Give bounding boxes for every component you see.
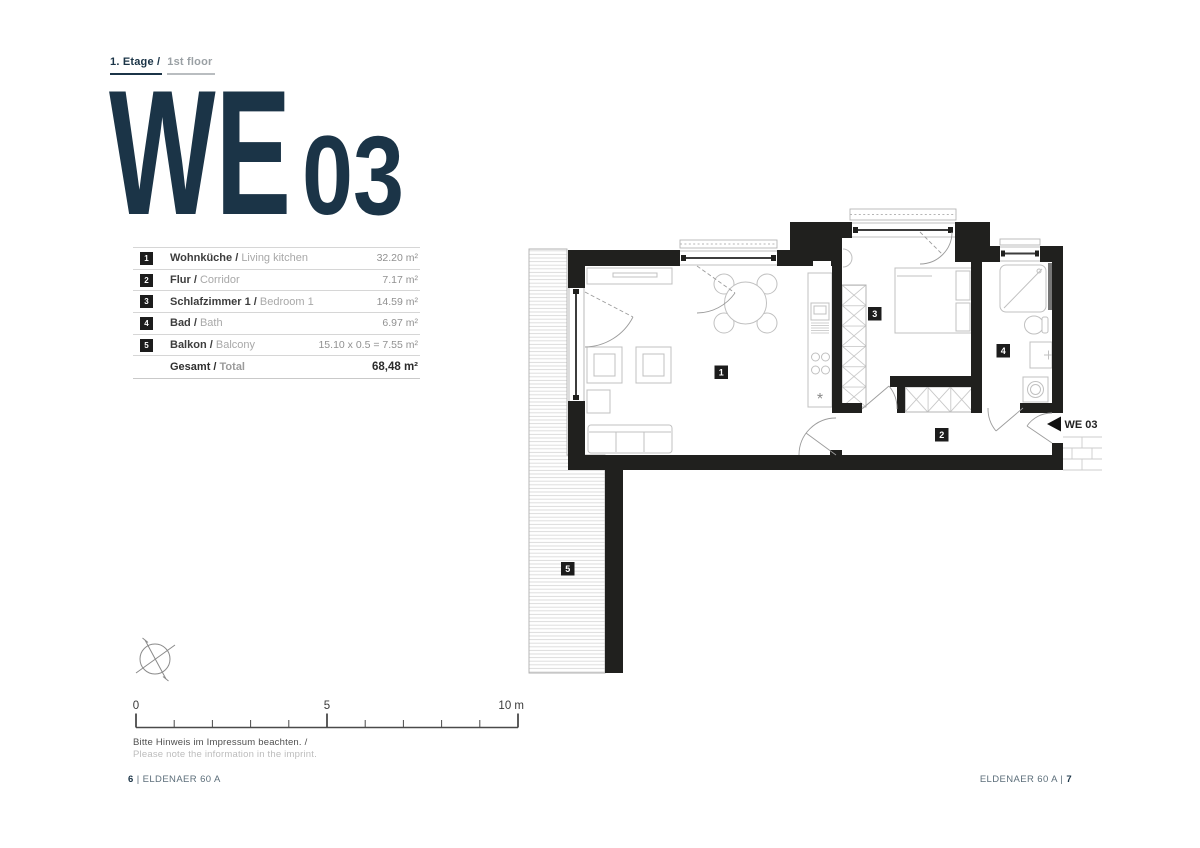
washing-machine bbox=[1023, 377, 1048, 402]
dining-table bbox=[725, 282, 767, 324]
armchair bbox=[587, 347, 622, 383]
living-top-window bbox=[680, 250, 777, 266]
svg-text:3: 3 bbox=[872, 309, 877, 319]
table-row: 5 Balkon / Balcony 15.10 x 0.5 = 7.55 m² bbox=[133, 335, 420, 357]
room-name-en: Bedroom 1 bbox=[260, 296, 314, 308]
imprint-note-en: Please note the information in the impri… bbox=[133, 749, 317, 761]
table-row: 1 Wohnküche / Living kitchen 32.20 m² bbox=[133, 247, 420, 270]
toilet bbox=[1025, 316, 1044, 334]
compass-icon bbox=[130, 634, 185, 689]
floor-heading: 1. Etage /1st floor bbox=[110, 56, 215, 75]
imprint-note-de: Bitte Hinweis im Impressum beachten. / bbox=[133, 737, 317, 749]
total-area: 68,48 m² bbox=[372, 361, 420, 373]
footer-right-text: ELDENAER 60 A | bbox=[980, 774, 1063, 785]
footer-right: ELDENAER 60 A | 7 bbox=[980, 774, 1072, 785]
room-name-en: Balcony bbox=[216, 339, 255, 351]
room-label-1: 1 bbox=[715, 366, 729, 380]
room-area: 7.17 m² bbox=[382, 274, 420, 286]
entry-arrow-icon bbox=[1047, 417, 1061, 432]
room-table: 1 Wohnküche / Living kitchen 32.20 m² 2 … bbox=[133, 247, 420, 379]
room-name-en: Corridor bbox=[200, 274, 240, 286]
footer-left: 6 | ELDENAER 60 A bbox=[128, 774, 221, 785]
pillow bbox=[956, 303, 970, 331]
brick-pattern bbox=[1063, 437, 1102, 470]
floor-label-de: 1. Etage / bbox=[110, 56, 162, 75]
scale-label-5: 5 bbox=[324, 700, 330, 712]
page-number-right: 7 bbox=[1066, 774, 1072, 785]
room-number-badge: 5 bbox=[140, 339, 153, 352]
unit-title: WE 03 bbox=[106, 76, 446, 226]
room-number-badge: 2 bbox=[140, 274, 153, 287]
entry-label: WE 03 bbox=[1065, 419, 1098, 431]
room-label-5: 5 bbox=[561, 562, 575, 576]
room-area: 6.97 m² bbox=[382, 317, 420, 329]
room-number-badge: 1 bbox=[140, 252, 153, 265]
living-room-furniture bbox=[587, 268, 777, 453]
boiler-symbol: * bbox=[817, 391, 823, 408]
room-number-badge: 4 bbox=[140, 317, 153, 330]
bath-window bbox=[1000, 246, 1040, 262]
wall-lamp bbox=[843, 249, 852, 267]
scale-bar: 0 5 10 m bbox=[120, 698, 540, 733]
svg-text:5: 5 bbox=[565, 564, 570, 574]
room-name-en: Living kitchen bbox=[241, 252, 308, 264]
room-area: 15.10 x 0.5 = 7.55 m² bbox=[318, 339, 420, 351]
cooktop-burner bbox=[822, 353, 830, 361]
room-area: 14.59 m² bbox=[377, 296, 420, 308]
page-number-left: 6 bbox=[128, 774, 134, 785]
kitchen-furniture: * bbox=[808, 273, 832, 408]
entry-marker: WE 03 bbox=[1047, 417, 1098, 432]
toilet-tank bbox=[1042, 317, 1048, 333]
total-label-de: Gesamt / bbox=[170, 361, 216, 373]
sideboard bbox=[587, 268, 672, 284]
room-area: 32.20 m² bbox=[377, 252, 420, 264]
svg-text:4: 4 bbox=[1001, 346, 1006, 356]
table-row: 3 Schlafzimmer 1 / Bedroom 1 14.59 m² bbox=[133, 291, 420, 313]
cooktop-burner bbox=[812, 353, 820, 361]
room-number-badge: 3 bbox=[140, 295, 153, 308]
scale-label-0: 0 bbox=[133, 700, 139, 712]
cooktop-burner bbox=[812, 366, 820, 374]
pillow bbox=[956, 271, 970, 300]
room-name-de: Wohnküche / bbox=[170, 252, 238, 264]
room-name-de: Schlafzimmer 1 / bbox=[170, 296, 257, 308]
sofa bbox=[588, 425, 672, 453]
bedroom-window bbox=[852, 222, 955, 238]
kitchen-counter bbox=[808, 273, 832, 407]
balcony-door-window bbox=[568, 288, 585, 401]
room-name-en: Bath bbox=[200, 317, 223, 329]
table-row: 2 Flur / Corridor 7.17 m² bbox=[133, 270, 420, 292]
svg-text:1: 1 bbox=[719, 368, 724, 378]
corridor-wardrobe bbox=[905, 387, 973, 412]
cooktop-burner bbox=[822, 366, 830, 374]
total-label-en: Total bbox=[220, 361, 245, 373]
unit-title-number: 03 bbox=[302, 113, 404, 226]
floor-label-en: 1st floor bbox=[167, 56, 214, 75]
room-label-3: 3 bbox=[868, 307, 882, 321]
room-label-4: 4 bbox=[997, 344, 1011, 358]
unit-title-we: WE bbox=[109, 76, 291, 226]
room-name-de: Bad / bbox=[170, 317, 197, 329]
table-total-row: Gesamt / Total 68,48 m² bbox=[133, 356, 420, 379]
room-name-de: Flur / bbox=[170, 274, 197, 286]
room-label-2: 2 bbox=[935, 428, 949, 442]
room-name-de: Balkon / bbox=[170, 339, 213, 351]
scale-label-10: 10 m bbox=[498, 700, 524, 712]
svg-text:2: 2 bbox=[939, 430, 944, 440]
bath-furniture bbox=[1000, 263, 1053, 402]
side-table bbox=[587, 390, 610, 413]
wardrobe bbox=[842, 285, 866, 407]
imprint-note: Bitte Hinweis im Impressum beachten. / P… bbox=[133, 737, 317, 761]
table-row: 4 Bad / Bath 6.97 m² bbox=[133, 313, 420, 335]
floor-plan: * bbox=[520, 200, 1120, 690]
footer-left-text: | ELDENAER 60 A bbox=[137, 774, 221, 785]
armchair bbox=[636, 347, 671, 383]
